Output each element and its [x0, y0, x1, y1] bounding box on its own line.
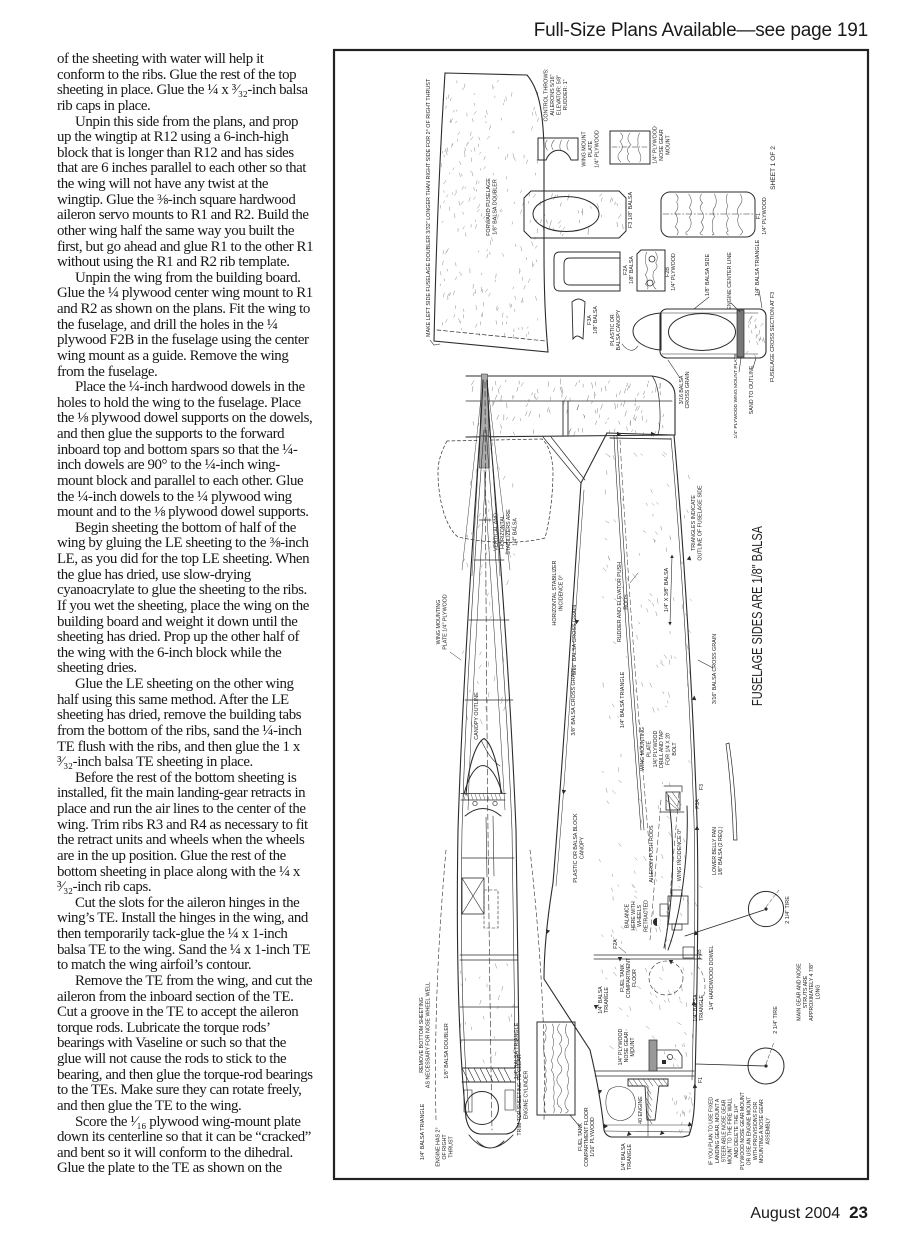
svg-text:PLASTIC OR: PLASTIC OR — [610, 314, 616, 346]
svg-text:2 1/4" TIRE: 2 1/4" TIRE — [785, 896, 791, 924]
svg-text:INCIDENCE 0°: INCIDENCE 0° — [558, 575, 564, 611]
svg-text:F2B: F2B — [697, 949, 703, 959]
svg-text:FUEL TANK: FUEL TANK — [620, 964, 626, 992]
svg-text:3/8" BALSA CROSS GRAIN: 3/8" BALSA CROSS GRAIN — [571, 668, 577, 735]
svg-text:OUTLINE OF FUSELAGE SIDE: OUTLINE OF FUSELAGE SIDE — [697, 485, 703, 561]
svg-text:MAIN GEAR AND NOSE: MAIN GEAR AND NOSE — [796, 963, 802, 1021]
svg-text:RETRACTED: RETRACTED — [643, 900, 649, 932]
svg-text:1/4" HARDWOOD DOWEL: 1/4" HARDWOOD DOWEL — [709, 946, 715, 1011]
svg-text:RUDDER: 1": RUDDER: 1" — [563, 79, 569, 110]
svg-text:1/4" PLYWOOD: 1/4" PLYWOOD — [618, 1028, 624, 1065]
svg-text:2 1/4" TIRE: 2 1/4" TIRE — [773, 1006, 779, 1034]
svg-text:ELEVATOR: 5/8": ELEVATOR: 5/8" — [556, 75, 562, 115]
svg-text:TRIANGLE: TRIANGLE — [627, 1143, 633, 1169]
svg-text:PLATE: PLATE — [588, 140, 594, 157]
svg-text:WITH PROVISIONS FOR: WITH PROVISIONS FOR — [753, 1102, 759, 1161]
svg-text:STEER ABLE NOSE GEAR: STEER ABLE NOSE GEAR — [721, 1099, 727, 1162]
svg-text:MOUNTING A NOSE GEAR: MOUNTING A NOSE GEAR — [759, 1099, 765, 1163]
svg-text:PLYWOOD NOSE GEAR MOUNT: PLYWOOD NOSE GEAR MOUNT — [740, 1092, 746, 1169]
svg-text:WHEELS: WHEELS — [637, 905, 643, 927]
svg-text:FUEL TANK: FUEL TANK — [578, 1123, 584, 1151]
svg-text:40 ENGINE: 40 ENGINE — [638, 1096, 644, 1124]
svg-text:F1: F1 — [698, 1077, 704, 1083]
svg-text:NOSE GEAR: NOSE GEAR — [624, 1031, 630, 1062]
svg-text:TRIANGLE: TRIANGLE — [604, 986, 610, 1012]
svg-text:FUSELAGE CROSS SECTION AT F3: FUSELAGE CROSS SECTION AT F3 — [770, 292, 776, 382]
svg-text:DRILL AND TAP: DRILL AND TAP — [659, 730, 665, 768]
svg-text:HERE WITH: HERE WITH — [631, 901, 637, 930]
svg-text:ENGINE CYLINDER: ENGINE CYLINDER — [523, 1071, 529, 1120]
svg-text:FOR 1/4 X 20: FOR 1/4 X 20 — [666, 733, 672, 765]
svg-text:1/4" PLYWOOD: 1/4" PLYWOOD — [594, 130, 600, 168]
svg-text:WING INCIDENCE 0°: WING INCIDENCE 0° — [677, 829, 683, 881]
svg-text:REMOVE BOTTOM SHEETING: REMOVE BOTTOM SHEETING — [419, 997, 425, 1073]
svg-text:APPROXIMATELY 4 7/8": APPROXIMATELY 4 7/8" — [809, 963, 815, 1021]
svg-text:CANOPY: CANOPY — [579, 836, 585, 859]
svg-text:TRIANGLE: TRIANGLE — [699, 994, 705, 1020]
svg-text:1/4" PLYWOOD: 1/4" PLYWOOD — [653, 126, 659, 164]
svg-text:PLATE: PLATE — [646, 740, 652, 757]
svg-text:1/16" PLYWOOD: 1/16" PLYWOOD — [590, 1117, 596, 1157]
svg-text:RODS: RODS — [623, 594, 629, 610]
svg-text:WING MOUNT: WING MOUNT — [582, 131, 588, 167]
svg-text:3/16" BALSA CROSS GRAIN: 3/16" BALSA CROSS GRAIN — [712, 634, 718, 704]
svg-text:CONTROL THROWS:: CONTROL THROWS: — [543, 68, 549, 121]
svg-text:1/4" PLYWOOD: 1/4" PLYWOOD — [671, 253, 677, 291]
svg-text:1/8" BALSA SIDE: 1/8" BALSA SIDE — [705, 254, 711, 296]
svg-text:1/8" BALSA: 1/8" BALSA — [629, 256, 635, 284]
svg-text:TRIM TOP SHEETING TO CLEAR: TRIM TOP SHEETING TO CLEAR — [517, 1054, 523, 1136]
svg-text:1/4" BALSA TRIANGLE: 1/4" BALSA TRIANGLE — [755, 239, 761, 296]
svg-text:1/8" BALSA: 1/8" BALSA — [593, 306, 599, 334]
svg-text:CANOPY OUTLINE: CANOPY OUTLINE — [474, 692, 480, 740]
svg-text:COMPARTMENT: COMPARTMENT — [626, 957, 632, 998]
svg-text:1/4" PLYWOOD WING MOUNT PLATE: 1/4" PLYWOOD WING MOUNT PLATE — [733, 353, 739, 439]
svg-text:1/4" BALSA: 1/4" BALSA — [693, 994, 699, 1022]
svg-text:1/4" BALSA: 1/4" BALSA — [598, 986, 604, 1014]
svg-text:F3A: F3A — [695, 799, 701, 809]
svg-text:MAKE LEFT SIDE FUSELAGE DOUBLE: MAKE LEFT SIDE FUSELAGE DOUBLER 3/32" LO… — [426, 78, 432, 337]
svg-text:F2B: F2B — [665, 267, 671, 277]
svg-text:RUDDER AND ELEVATOR PUSH: RUDDER AND ELEVATOR PUSH — [617, 562, 623, 642]
svg-text:HORIZONTAL: HORIZONTAL — [500, 515, 506, 549]
svg-text:MOUNT: MOUNT — [630, 1037, 636, 1057]
svg-text:STRUTS ARE: STRUTS ARE — [803, 975, 809, 1008]
svg-text:F1: F1 — [756, 213, 762, 219]
svg-text:1/4" PLYWOOD: 1/4" PLYWOOD — [762, 197, 768, 235]
svg-text:PLATE 1/4" PLYWOOD: PLATE 1/4" PLYWOOD — [442, 594, 448, 649]
svg-text:OR USE AN ENGINE MOUNT: OR USE AN ENGINE MOUNT — [746, 1097, 752, 1166]
svg-text:MOUNT: MOUNT — [665, 135, 671, 155]
svg-text:F3: F3 — [699, 784, 705, 790]
svg-text:LONG: LONG — [816, 985, 822, 1000]
svg-text:1/8" BALSA DOUBLER: 1/8" BALSA DOUBLER — [444, 1023, 450, 1079]
svg-text:1/4" BALSA TRIANGLE: 1/4" BALSA TRIANGLE — [620, 671, 626, 728]
svg-text:1/8" BALSA DOUBLER: 1/8" BALSA DOUBLER — [492, 179, 498, 235]
svg-text:F3 1/8" BALSA: F3 1/8" BALSA — [628, 192, 634, 228]
svg-text:3/16" BALSA CROSS GRAIN: 3/16" BALSA CROSS GRAIN — [572, 605, 578, 675]
svg-text:AILERON PUSH RODS: AILERON PUSH RODS — [649, 825, 655, 883]
svg-text:FORWARD FUSELAGE: FORWARD FUSELAGE — [486, 178, 492, 236]
svg-text:SAND TO OUTLINE: SAND TO OUTLINE — [749, 365, 755, 414]
svg-text:AILERONS 5/16": AILERONS 5/16" — [550, 74, 556, 115]
svg-text:MOUNT TO THE FIRE WALL: MOUNT TO THE FIRE WALL — [728, 1098, 734, 1165]
svg-text:COMPARTMENT FLOOR: COMPARTMENT FLOOR — [584, 1107, 590, 1167]
svg-text:FLOOR: FLOOR — [632, 969, 638, 987]
svg-text:THRUST: THRUST — [448, 1135, 454, 1157]
svg-text:F2A: F2A — [613, 939, 619, 949]
svg-text:HORIZONTAL STABILIZER: HORIZONTAL STABILIZER — [552, 560, 558, 625]
svg-text:BALSA CANOPY: BALSA CANOPY — [616, 309, 622, 350]
svg-text:1/4" BALSA: 1/4" BALSA — [512, 518, 518, 546]
svg-text:LOWER BELLY PAN: LOWER BELLY PAN — [712, 827, 718, 875]
svg-text:F2A: F2A — [623, 265, 629, 275]
svg-text:CROSS GRAIN: CROSS GRAIN — [685, 371, 691, 408]
svg-text:IF YOU PLAN TO USE FIXED: IF YOU PLAN TO USE FIXED — [709, 1097, 715, 1166]
svg-text:TRIANGLES INDICATE: TRIANGLES INDICATE — [691, 495, 697, 551]
svg-text:BALANCE: BALANCE — [625, 903, 631, 928]
svg-text:1/4" PLYWOOD: 1/4" PLYWOOD — [653, 730, 659, 767]
svg-text:BOLT: BOLT — [672, 742, 678, 756]
svg-text:LANDING GEAR, MOUNT A: LANDING GEAR, MOUNT A — [715, 1098, 721, 1163]
svg-text:1/4" X 3/8" BALSA: 1/4" X 3/8" BALSA — [664, 567, 670, 612]
svg-text:1/8" BALSA (2 REQ.): 1/8" BALSA (2 REQ.) — [718, 826, 724, 875]
svg-text:AS NECESSARY FOR NOSE WHEEL WE: AS NECESSARY FOR NOSE WHEEL WELL — [425, 982, 431, 1088]
svg-text:OF RIGHT: OF RIGHT — [442, 1134, 448, 1160]
svg-text:ENGINE HAS 2°: ENGINE HAS 2° — [436, 1127, 442, 1166]
svg-text:1/4" BALSA TRIANGLE: 1/4" BALSA TRIANGLE — [420, 1103, 426, 1160]
svg-text:AND DELETE THE 1/4": AND DELETE THE 1/4" — [734, 1104, 740, 1158]
svg-text:STABILIZERS ARE: STABILIZERS ARE — [506, 509, 512, 555]
svg-text:ENGINE CENTER LINE: ENGINE CENTER LINE — [727, 252, 733, 310]
svg-text:FUSELAGE SIDES ARE 1/8" BALSA: FUSELAGE SIDES ARE 1/8" BALSA — [750, 526, 766, 706]
svg-text:F3A: F3A — [587, 315, 593, 325]
svg-text:3/16 BALSA: 3/16 BALSA — [679, 375, 685, 404]
svg-text:WING MOUNTING: WING MOUNTING — [640, 727, 646, 771]
svg-text:NOSE GEAR: NOSE GEAR — [659, 129, 665, 161]
svg-text:1/4" BALSA: 1/4" BALSA — [621, 1143, 627, 1171]
svg-text:ASSEMBLY: ASSEMBLY — [765, 1117, 771, 1145]
svg-text:WING MOUNTING: WING MOUNTING — [436, 600, 442, 645]
svg-text:PLASTIC OR BALSA BLOCK: PLASTIC OR BALSA BLOCK — [573, 813, 579, 883]
svg-text:SHEET 1 OF 2: SHEET 1 OF 2 — [770, 146, 777, 190]
